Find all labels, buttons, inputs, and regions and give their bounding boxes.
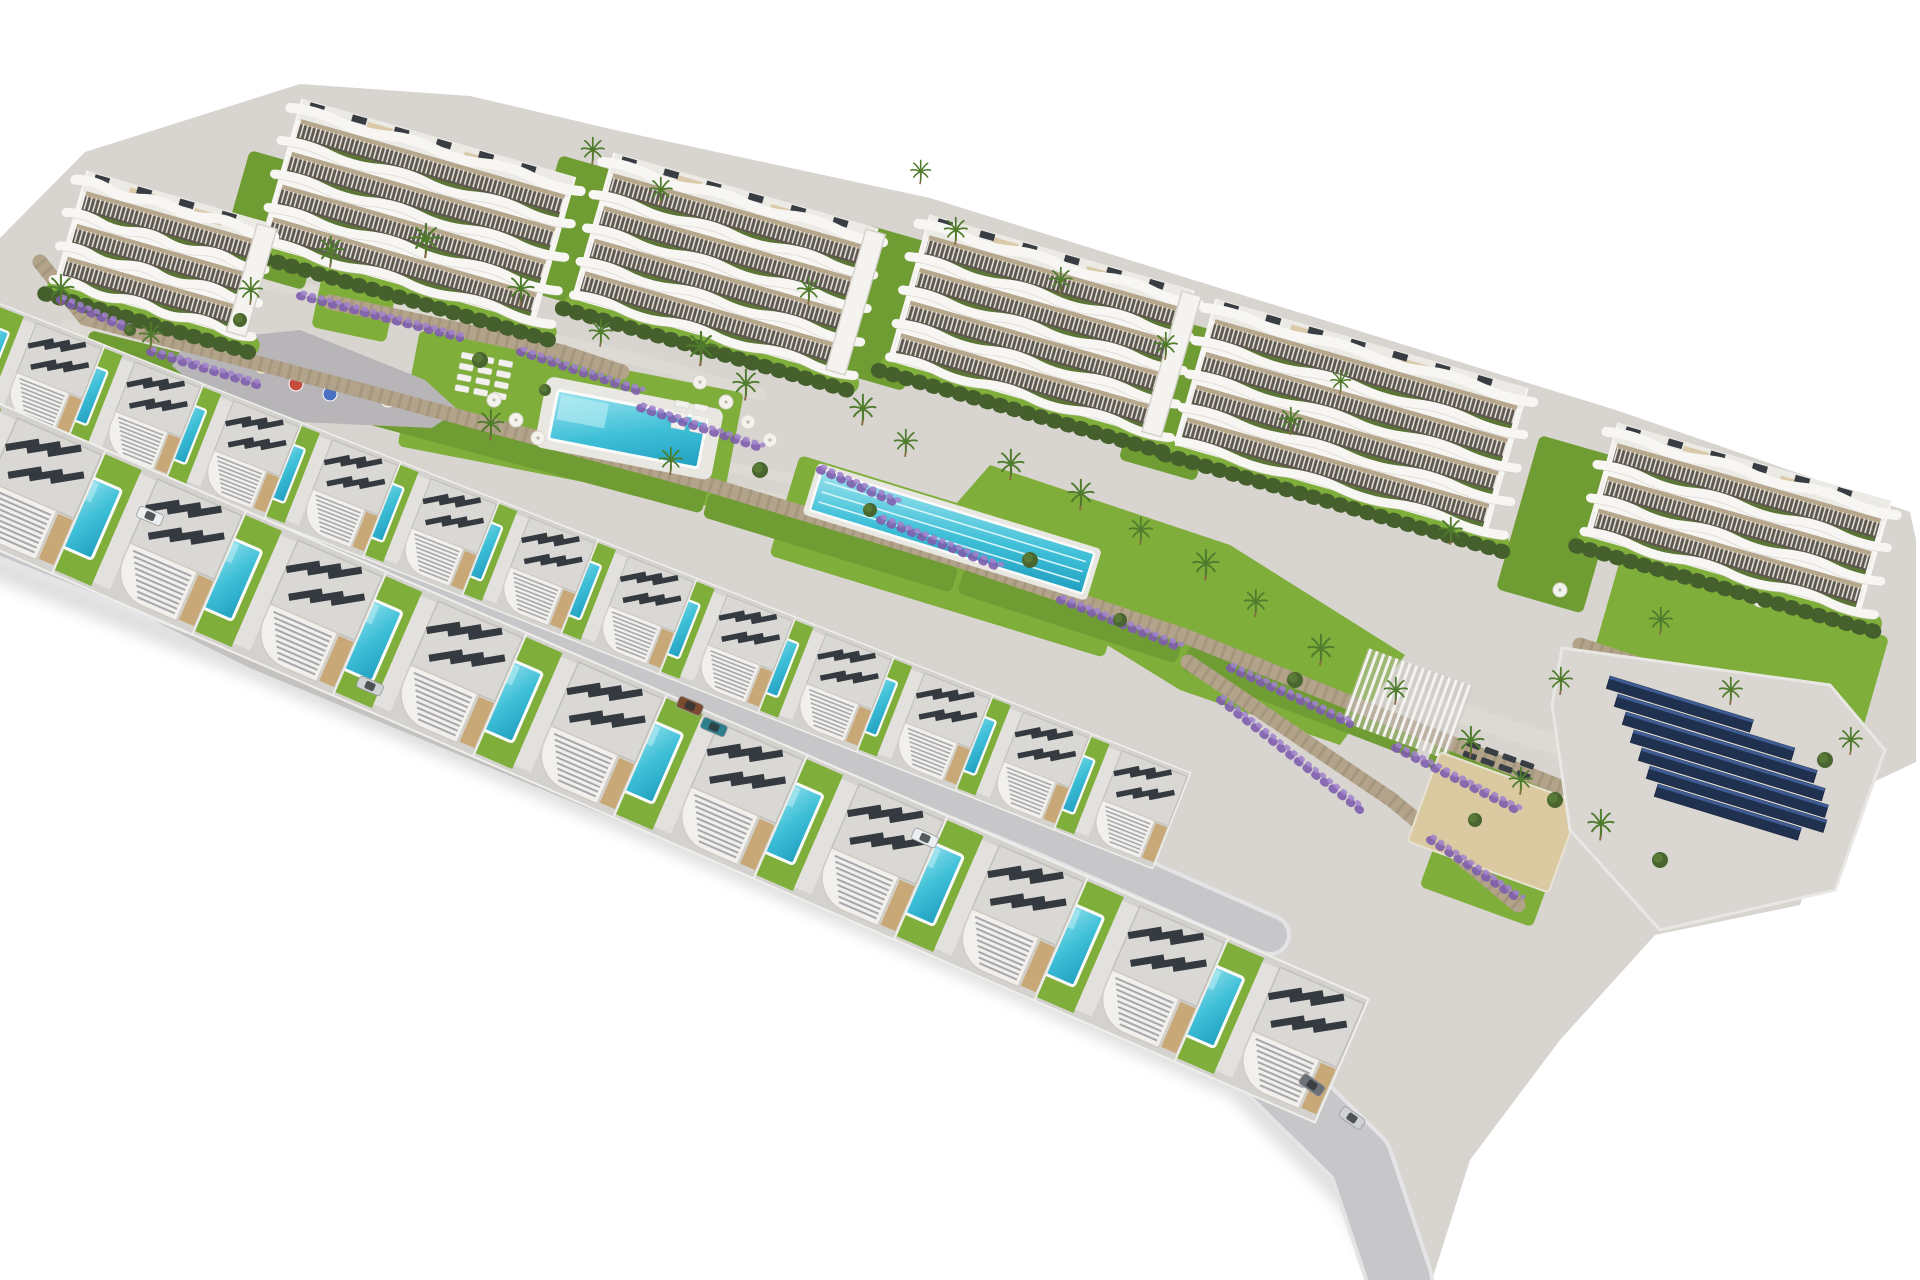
aerial-render-page [0, 0, 1920, 1280]
palm-frond [921, 172, 928, 178]
bush-highlight [1114, 614, 1122, 622]
bush-highlight [1653, 853, 1663, 863]
parasol-pole [1558, 588, 1561, 591]
bush-highlight [540, 385, 547, 392]
bush-highlight [1469, 814, 1477, 822]
bush-highlight [1818, 753, 1828, 763]
parasol-pole [698, 380, 701, 383]
parasol-pole [536, 436, 539, 439]
bush-highlight [1288, 673, 1298, 683]
parasol-pole [514, 418, 517, 421]
aerial-development-render [0, 0, 1920, 1280]
bush-highlight [473, 353, 483, 363]
parasol-pole [768, 438, 771, 441]
bush-highlight [234, 314, 242, 322]
palm-tree [911, 160, 931, 184]
bush-highlight [753, 463, 763, 473]
parasol-pole [492, 398, 495, 401]
palm-frond [914, 172, 921, 178]
parasol-pole [724, 400, 727, 403]
parasol-pole [746, 420, 749, 423]
bush-highlight [125, 325, 132, 332]
bush-highlight [1023, 553, 1033, 563]
bush-highlight [864, 504, 872, 512]
bush-highlight [1548, 793, 1558, 803]
